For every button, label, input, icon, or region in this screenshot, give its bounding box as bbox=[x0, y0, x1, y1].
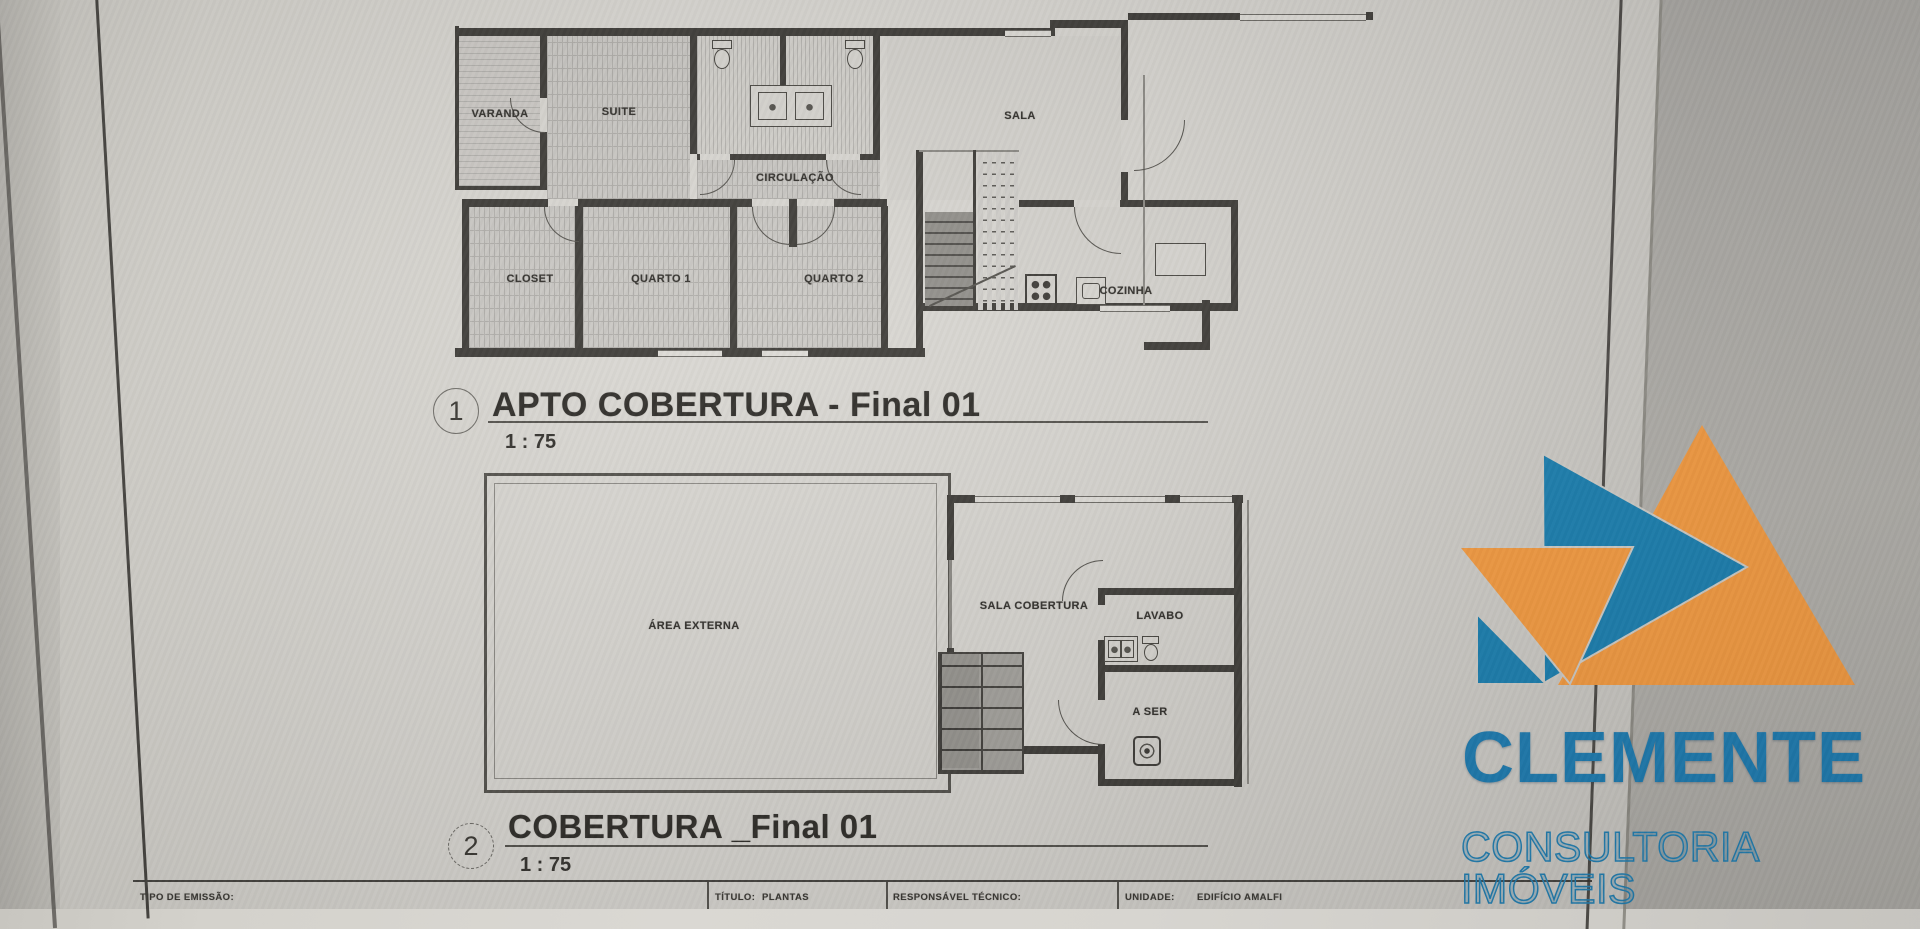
wall bbox=[1202, 300, 1210, 350]
room-label-sala-cobertura: SALA COBERTURA bbox=[980, 600, 1088, 612]
room-label-area-externa: ÁREA EXTERNA bbox=[648, 620, 739, 632]
wall bbox=[1120, 200, 1238, 207]
room-label-closet: CLOSET bbox=[506, 273, 553, 285]
title-block-divider bbox=[886, 882, 888, 909]
clemente-logo-icon bbox=[1430, 410, 1880, 700]
wall bbox=[462, 199, 548, 207]
wall bbox=[455, 186, 547, 190]
title-block-top-border bbox=[133, 880, 1592, 882]
plan-title-text: COBERTURA _Final 01 bbox=[508, 810, 878, 843]
stairs-lower-flight bbox=[925, 212, 973, 306]
room-label-suite: SUITE bbox=[602, 106, 636, 118]
wall bbox=[1165, 495, 1180, 503]
sink-icon bbox=[1121, 640, 1134, 658]
wall bbox=[1050, 20, 1128, 28]
stove-icon bbox=[1025, 274, 1057, 307]
wall bbox=[1121, 22, 1128, 120]
wall bbox=[462, 199, 469, 356]
plan-scale-text: 1 : 75 bbox=[505, 432, 556, 452]
wall bbox=[455, 26, 459, 190]
title-block-divider bbox=[1117, 882, 1119, 909]
stairs-shade bbox=[940, 654, 979, 768]
door-arc bbox=[1134, 120, 1185, 171]
wall bbox=[1098, 672, 1105, 700]
plan-number-bubble: 2 bbox=[448, 823, 494, 869]
toilet-icon bbox=[1142, 636, 1159, 644]
plan-scale-text: 1 : 75 bbox=[520, 855, 571, 875]
window bbox=[1240, 14, 1366, 21]
wall bbox=[947, 495, 975, 503]
sink-icon bbox=[758, 92, 787, 120]
titleblock-titulo-label: TÍTULO: bbox=[715, 893, 755, 903]
wall bbox=[789, 199, 797, 247]
door-arc bbox=[1058, 700, 1103, 745]
wall bbox=[578, 199, 752, 207]
wall bbox=[1098, 588, 1238, 595]
toilet-icon bbox=[1144, 644, 1158, 661]
wall bbox=[730, 206, 737, 348]
window bbox=[949, 560, 952, 648]
watermark-brand-text: CLEMENTE bbox=[1462, 722, 1866, 794]
room-label-quarto1: QUARTO 1 bbox=[631, 273, 691, 285]
wall bbox=[947, 503, 954, 560]
wall bbox=[730, 154, 826, 160]
wall bbox=[860, 154, 873, 160]
wall bbox=[1234, 495, 1242, 787]
wall bbox=[1231, 207, 1238, 311]
toilet-icon bbox=[845, 40, 865, 49]
sheet-frame-border-left bbox=[95, 0, 149, 919]
wall bbox=[834, 199, 887, 207]
room-label-varanda: VARANDA bbox=[472, 108, 529, 120]
titleblock-unidade-value: EDIFÍCIO AMALFI bbox=[1197, 893, 1282, 903]
toilet-icon bbox=[1133, 736, 1161, 766]
wall bbox=[780, 36, 786, 86]
window bbox=[1005, 30, 1051, 37]
window bbox=[1180, 496, 1232, 503]
title-underline bbox=[488, 421, 1208, 423]
sink-icon bbox=[1108, 640, 1121, 658]
titleblock-unidade-label: UNIDADE: bbox=[1125, 893, 1175, 903]
titleblock-responsavel-label: RESPONSÁVEL TÉCNICO: bbox=[893, 893, 1021, 903]
toilet-icon bbox=[847, 49, 863, 69]
wall bbox=[1098, 779, 1241, 786]
plan-number-bubble: 1 bbox=[433, 388, 479, 434]
room-label-quarto2: QUARTO 2 bbox=[804, 273, 864, 285]
watermark-tagline-text: CONSULTORIA IMÓVEIS bbox=[1461, 826, 1911, 910]
toilet-icon bbox=[712, 40, 732, 49]
titleblock-tipo-label: TIPO DE EMISSÃO: bbox=[140, 893, 234, 903]
window bbox=[658, 350, 722, 357]
wall bbox=[1060, 495, 1075, 503]
room-label-circulacao: CIRCULAÇÃO bbox=[756, 172, 834, 184]
window bbox=[975, 496, 1060, 503]
sink-icon bbox=[795, 92, 824, 120]
plan-title-text: APTO COBERTURA - Final 01 bbox=[492, 388, 981, 422]
titleblock-titulo-value: PLANTAS bbox=[762, 893, 809, 903]
title-underline bbox=[505, 845, 1208, 847]
toilet-icon bbox=[714, 49, 730, 69]
kitchen-sink-basin bbox=[1082, 283, 1100, 299]
window bbox=[1100, 305, 1170, 312]
wall bbox=[540, 132, 547, 190]
counter-icon bbox=[1155, 243, 1206, 276]
wall bbox=[1128, 13, 1240, 20]
wall bbox=[1247, 500, 1249, 784]
wall bbox=[873, 36, 880, 160]
window bbox=[762, 350, 808, 357]
wall bbox=[540, 28, 547, 98]
wall bbox=[881, 206, 888, 348]
left-margin-strip bbox=[0, 0, 60, 909]
room-label-sala: SALA bbox=[1004, 110, 1036, 122]
wall bbox=[916, 150, 923, 311]
wall bbox=[1019, 200, 1074, 207]
stairs-upper-flight bbox=[978, 152, 1018, 310]
door-arc bbox=[1062, 560, 1103, 601]
wall bbox=[1144, 342, 1210, 350]
title-block-divider bbox=[707, 882, 709, 909]
wall bbox=[1366, 12, 1373, 20]
room-label-a-ser: A SER bbox=[1132, 706, 1167, 718]
room-label-lavabo: LAVABO bbox=[1136, 610, 1183, 622]
room-label-cozinha: COZINHA bbox=[1100, 285, 1153, 297]
wall bbox=[916, 311, 923, 357]
wall bbox=[1143, 75, 1145, 305]
wall bbox=[690, 36, 697, 154]
window bbox=[1075, 496, 1165, 503]
wall bbox=[1098, 665, 1241, 672]
